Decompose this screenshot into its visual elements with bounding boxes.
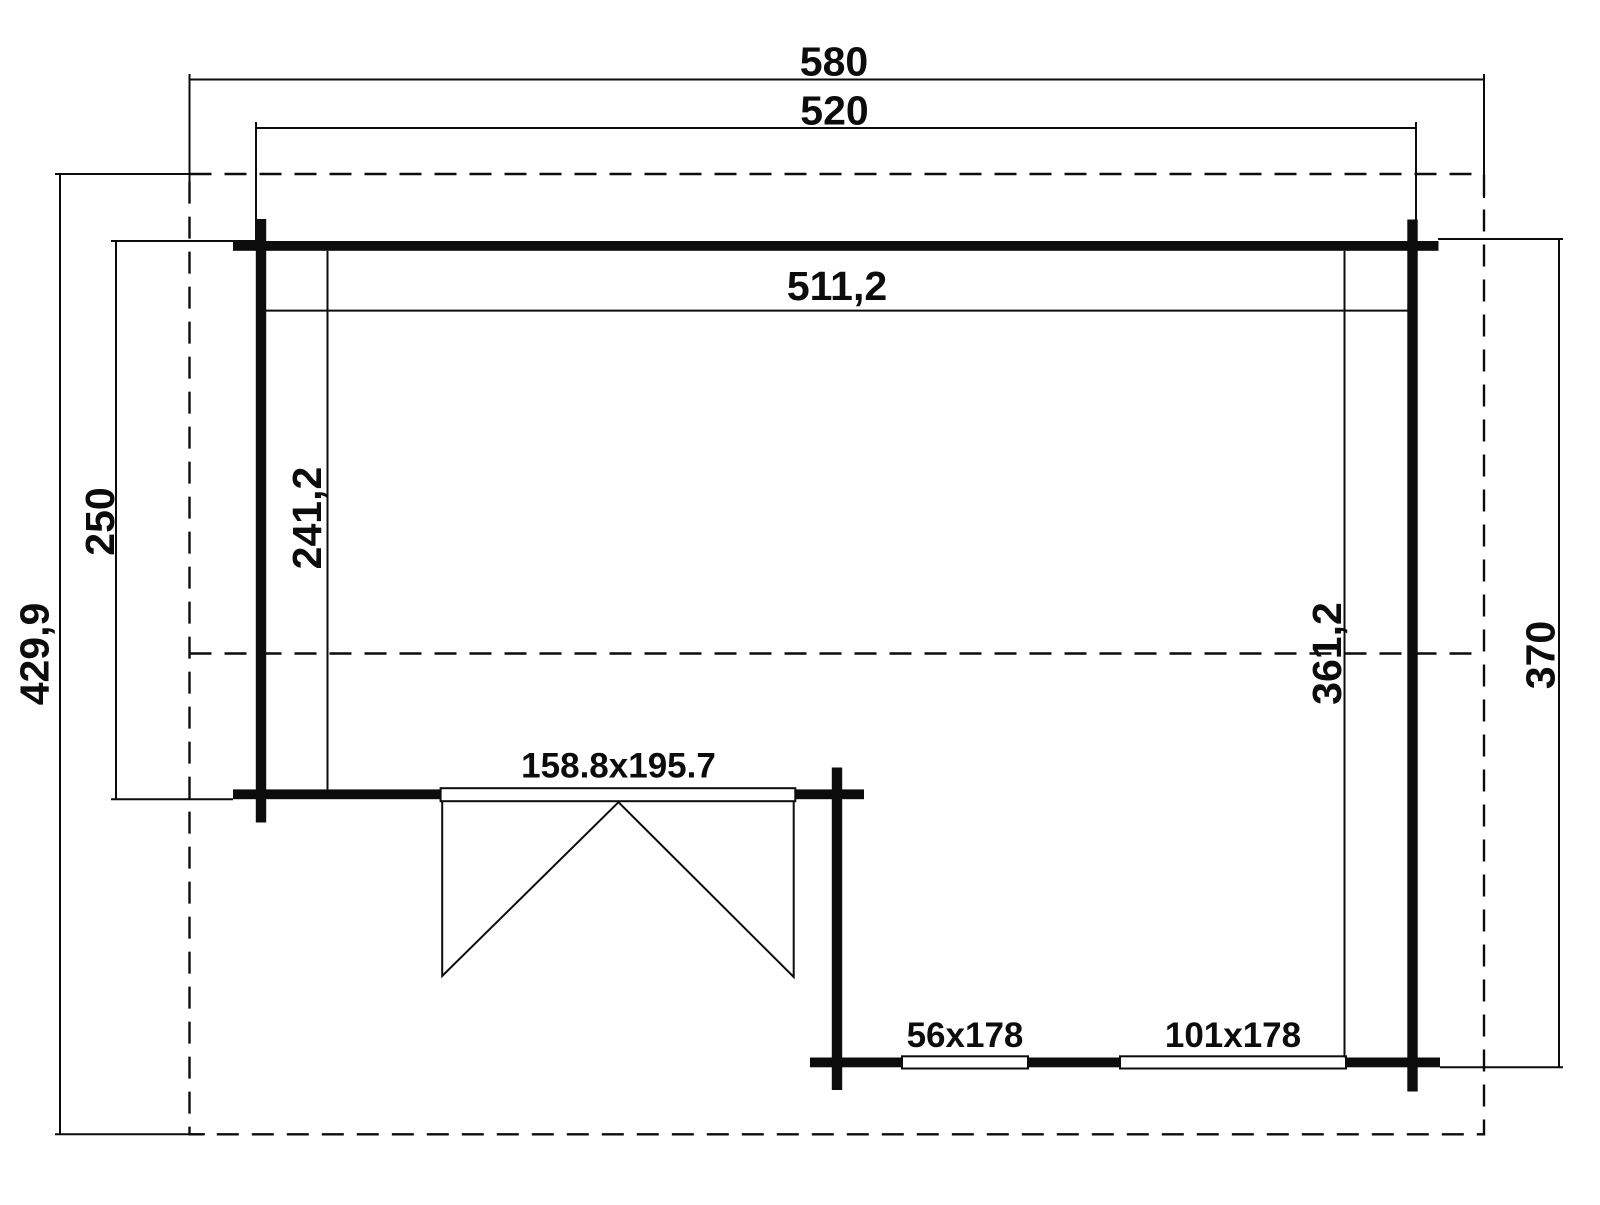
svg-text:370: 370 [1518,621,1564,689]
svg-text:511,2: 511,2 [787,263,887,309]
svg-text:361,2: 361,2 [1304,602,1350,705]
svg-text:101x178: 101x178 [1165,1016,1301,1055]
svg-text:250: 250 [77,487,123,555]
svg-text:56x178: 56x178 [907,1016,1024,1055]
svg-text:520: 520 [800,88,868,134]
svg-text:158.8x195.7: 158.8x195.7 [521,747,716,786]
svg-text:241,2: 241,2 [284,467,330,570]
svg-text:580: 580 [800,39,868,85]
svg-text:429,9: 429,9 [12,603,58,706]
